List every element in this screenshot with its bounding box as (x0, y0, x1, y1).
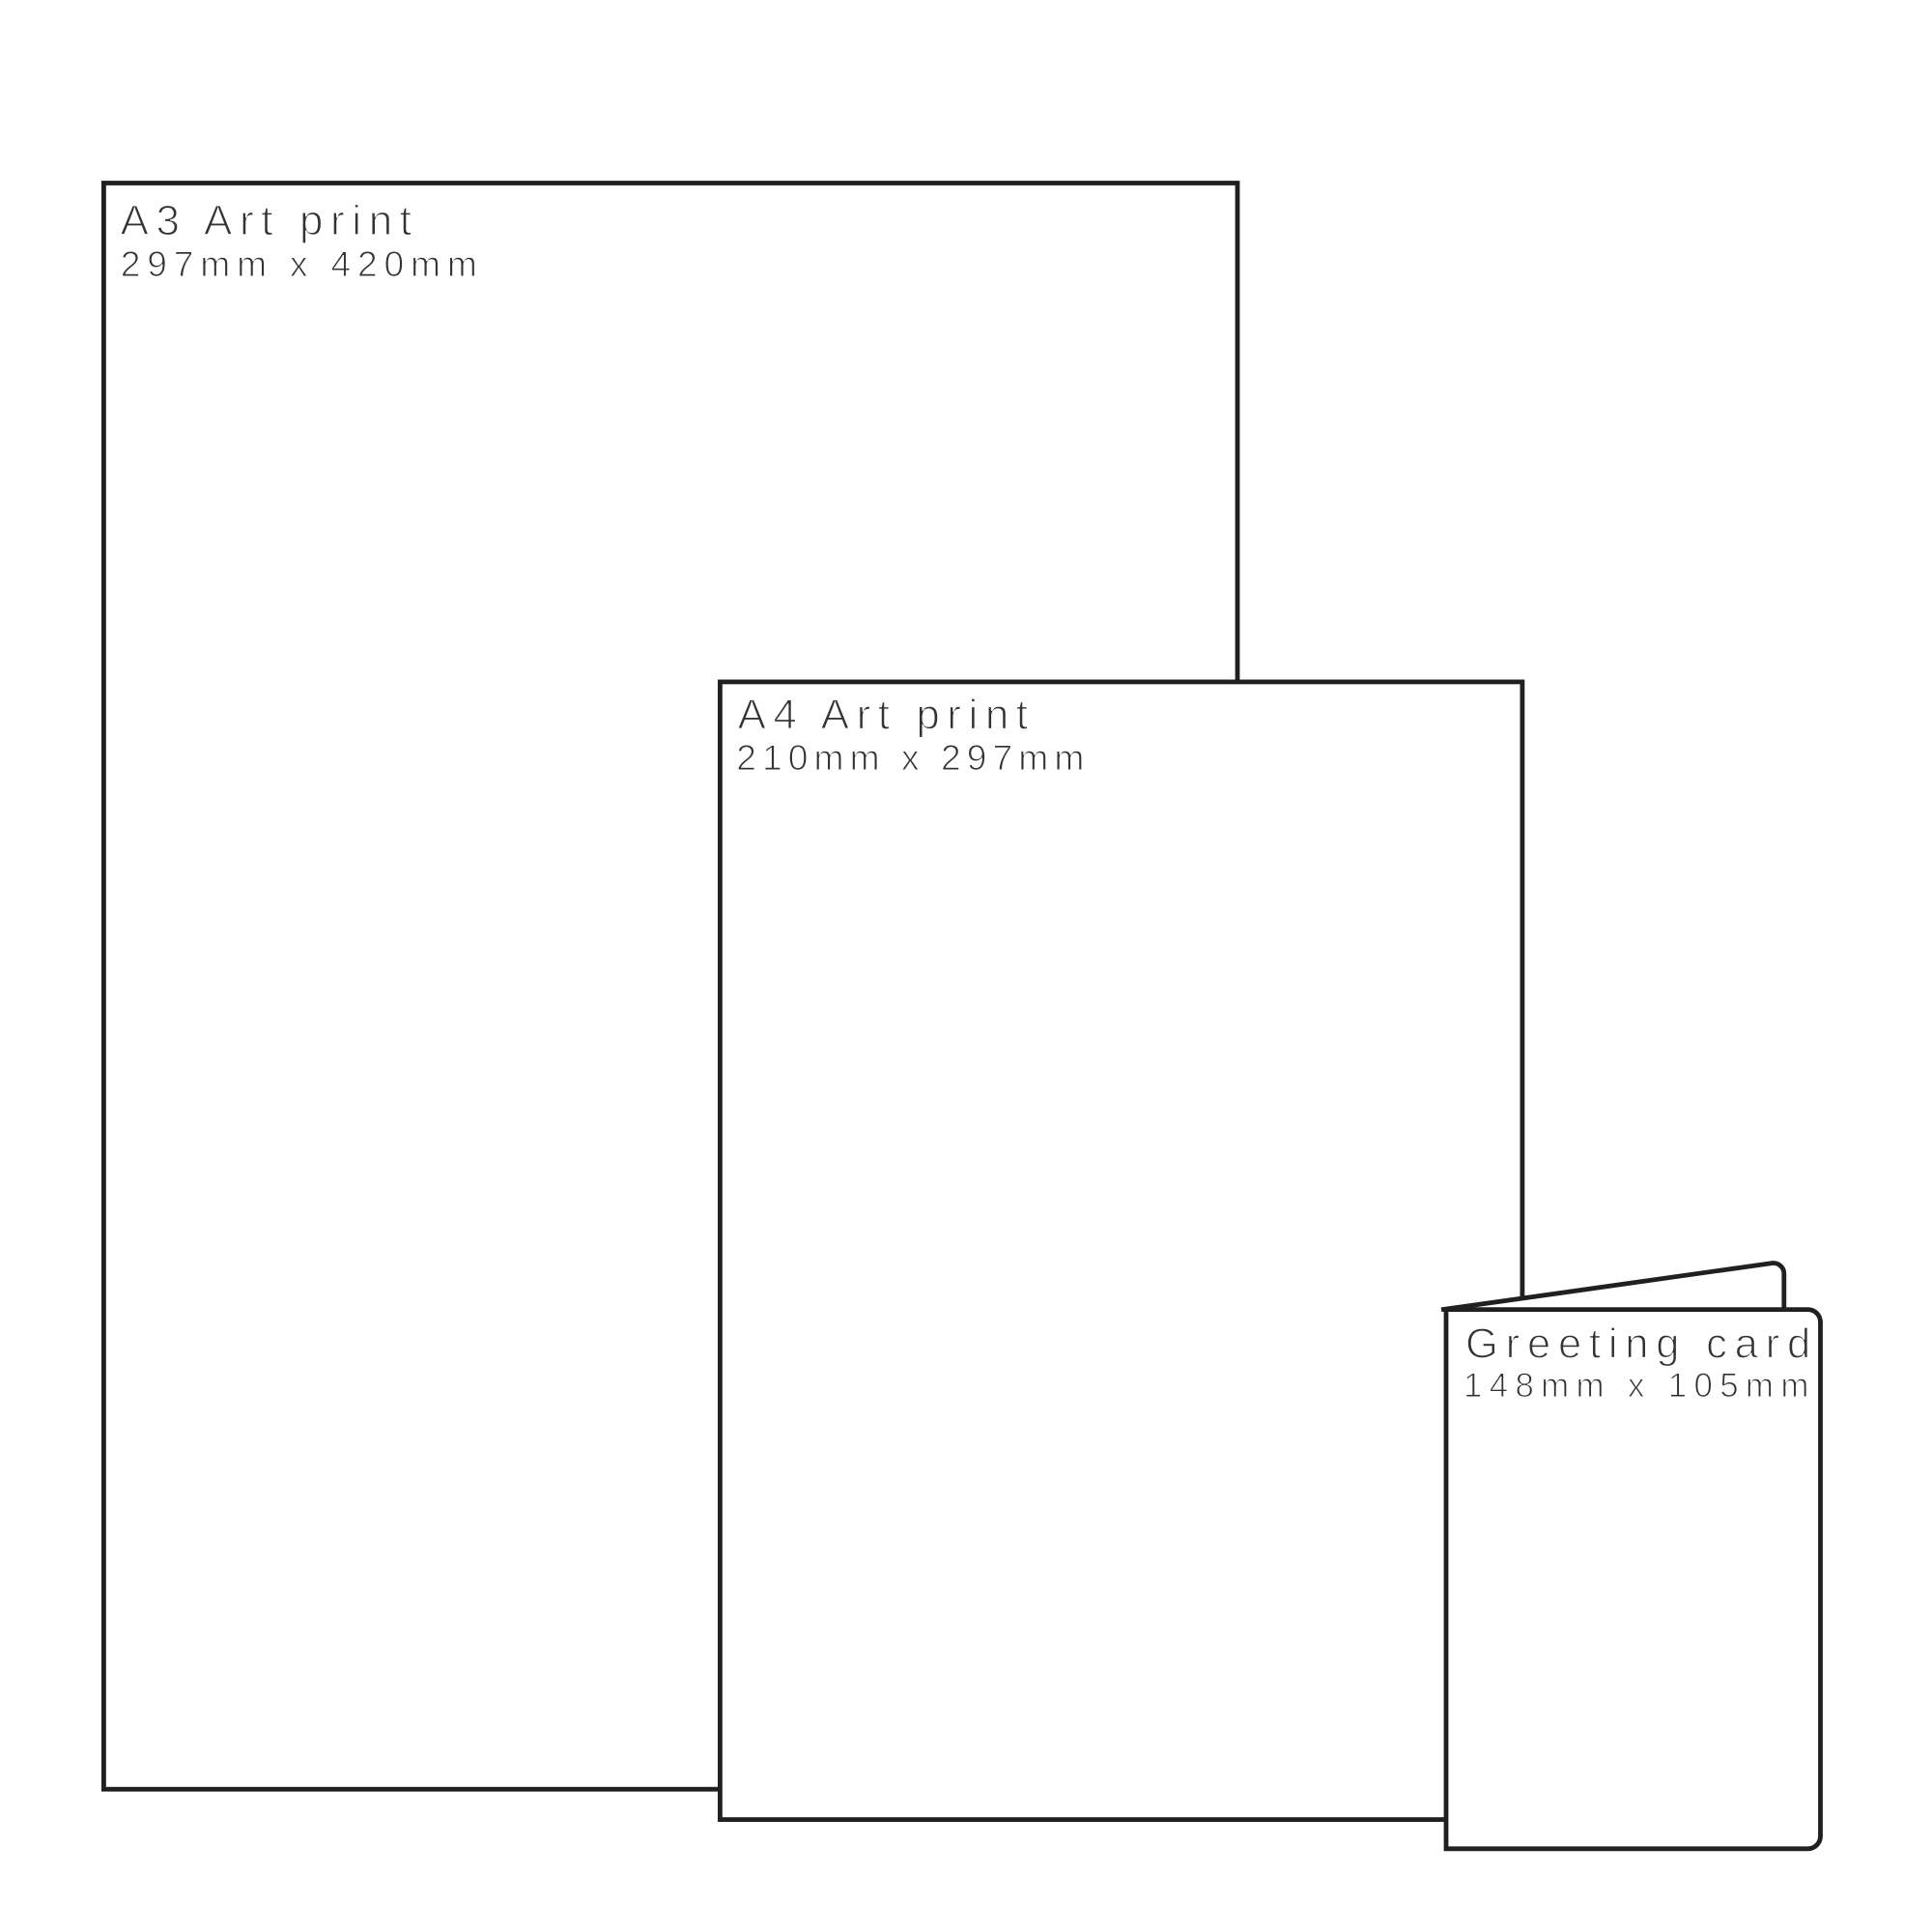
svg-text:Greeting card: Greeting card (1465, 1321, 1816, 1367)
svg-text:A4 Art print: A4 Art print (738, 692, 1033, 739)
svg-text:A3 Art print: A3 Art print (121, 197, 416, 244)
svg-text:297mm x 420mm: 297mm x 420mm (121, 243, 480, 284)
svg-text:210mm x 297mm: 210mm x 297mm (736, 737, 1087, 778)
svg-text:148mm x 105mm: 148mm x 105mm (1463, 1367, 1811, 1405)
